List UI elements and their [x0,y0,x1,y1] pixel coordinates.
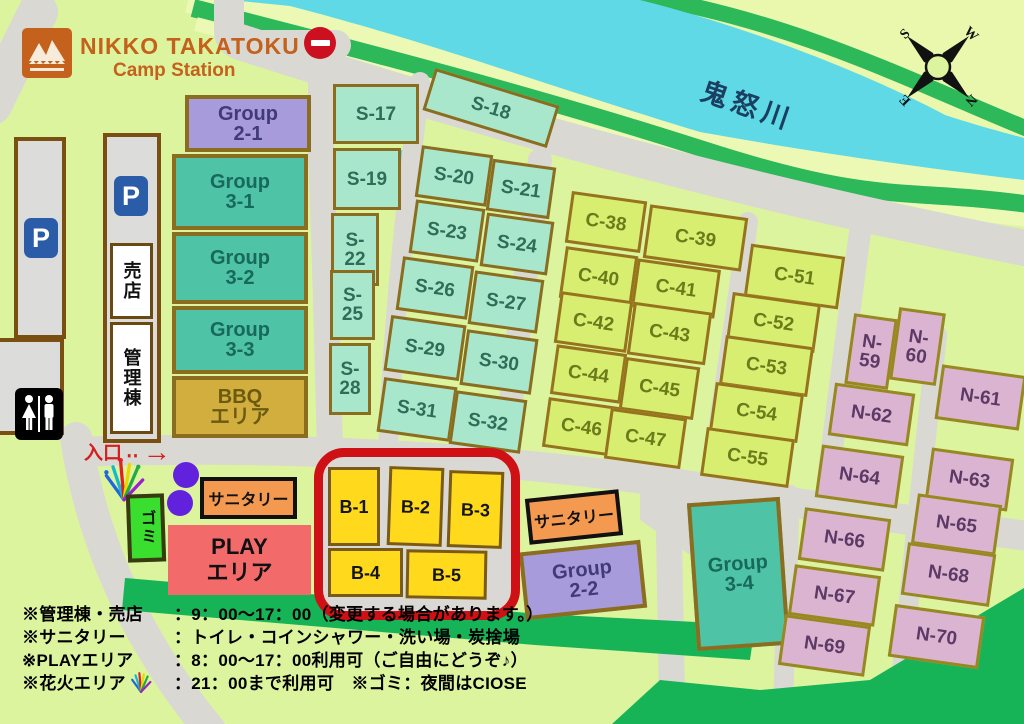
site-label: 2-2 [569,578,600,601]
site-label: C-55 [726,445,769,470]
site-s-30: S-30 [459,329,538,394]
site-b-2: B-2 [387,466,445,547]
site-c-43: C-43 [627,302,713,365]
site-s-23: S-23 [409,199,486,262]
site-label: C-53 [745,354,788,379]
site-label: S-24 [496,232,538,256]
site-n-64: N-64 [815,444,905,508]
site-label: C-39 [674,226,717,251]
site-n-62: N-62 [828,383,916,447]
site-b-3: B-3 [447,470,505,549]
parking-icon: P [24,218,58,258]
site-label: S-17 [356,105,396,124]
site-group-3-4: Group3-4 [687,497,790,651]
site-label: エリア [210,407,270,427]
site-label: C-38 [584,210,627,235]
site-label: 3-4 [724,573,754,595]
play-area: PLAY エリア [168,525,311,595]
play-label-1: PLAY [211,534,268,560]
site-label: S-30 [478,350,520,374]
site-group-2-1: Group2-1 [185,95,311,152]
site-label: C-46 [560,415,603,440]
site-label: N-63 [948,467,991,492]
site-label: S-31 [396,397,438,421]
site-label: N-68 [927,562,970,587]
note-value: ：21：00まで利用可 ※ゴミ：夜間はCIOSE [174,669,527,694]
entrance-marker: 入口 ‥ → [84,438,171,465]
site-label: B-4 [351,564,380,582]
site-label: C-44 [567,362,610,387]
site-label: 2-1 [234,124,263,144]
site-s-32: S-32 [449,390,528,453]
site-label: C-40 [577,265,620,290]
mountain-logo-icon [25,31,69,75]
note-row: ※管理棟・売店 ：9：00～17：00（変更する場合があります。） [22,601,543,624]
entrance-dots: ‥ [126,440,139,463]
note-value: ：トイレ・コインシャワー・洗い場・炭捨場 [174,623,520,648]
site-s-27: S-27 [468,270,545,333]
site-label: S-20 [433,164,475,188]
purple-dot [173,462,199,488]
note-row: ※PLAYエリア ：8：00～17：00利用可（ご自由にどうぞ♪） [22,647,543,670]
site-s-25: S- 25 [330,270,375,340]
site-label: C-52 [752,310,795,335]
site-label: S-18 [469,93,513,123]
office-building: 管理棟 [110,322,153,434]
no-entry-icon [304,27,336,59]
site-bbq-エリア: BBQエリア [172,376,308,438]
site-label: B-2 [401,497,431,516]
site-label: N-61 [959,385,1002,410]
note-label: ※花火エリア [22,669,126,694]
entrance-label: 入口 [84,438,122,465]
site-label: 3-1 [226,192,255,212]
site-label: Group [210,172,270,192]
shop-label: 売店 [119,261,145,301]
site-s-29: S-29 [383,315,466,381]
site-label: B-3 [461,500,491,519]
map-notes: ※管理棟・売店 ：9：00～17：00（変更する場合があります。） ※サニタリー… [22,601,543,693]
site-s-24: S-24 [480,213,555,276]
sanitary-label: サニタリー [208,486,288,510]
site-label: N- 60 [904,326,930,367]
camp-map: 鬼怒川 NIKKO TAKATOKU Camp Station P P [0,0,1024,724]
site-label: 3-3 [226,340,255,360]
site-label: B-5 [432,565,461,584]
site-label: S- 22 [344,231,365,269]
site-label: S-26 [414,276,456,300]
site-label: S-19 [347,170,387,189]
site-group-3-3: Group3-3 [172,306,308,374]
site-b-1: B-1 [328,467,380,546]
site-label: N- 59 [858,331,884,372]
site-c-47: C-47 [604,408,687,469]
site-label: S- 28 [339,360,360,398]
note-row: ※花火エリア ：21：00まで利用可 ※ゴミ：夜間はCIOSE [22,670,543,693]
camp-title: NIKKO TAKATOKU [80,33,300,60]
site-s-26: S-26 [396,256,475,319]
site-s-17: S-17 [333,84,419,144]
site-label: S-27 [485,290,527,314]
site-label: C-42 [572,310,615,335]
site-label: N-64 [838,464,881,489]
restroom-icon [15,388,63,440]
site-n-60: N- 60 [889,307,946,386]
shop-building: 売店 [110,243,153,319]
site-label: N-67 [813,583,856,608]
note-value: ：9：00～17：00（変更する場合があります。） [174,600,543,625]
trash-area: ゴミ [126,493,166,562]
site-label: N-70 [915,624,958,649]
site-s-31: S-31 [377,377,458,442]
purple-dot [167,490,193,516]
site-n-61: N-61 [935,364,1024,430]
site-label: S-21 [500,177,542,201]
site-b-4: B-4 [328,548,403,597]
trash-label: ゴミ [133,510,158,547]
site-s-28: S- 28 [329,343,371,415]
office-label: 管理棟 [119,348,145,408]
camp-logo [22,28,72,78]
site-label: C-45 [638,376,681,401]
site-b-5: B-5 [406,549,488,599]
site-c-42: C-42 [554,291,634,353]
site-label: N-62 [850,402,893,427]
site-label: BBQ [218,387,262,407]
site-label: Group [210,248,270,268]
site-label: S-23 [426,219,468,243]
sanitary-station-west: サニタリー [200,477,297,519]
compass-icon: S W E N [893,22,983,112]
sanitary-station-east: サニタリー [525,489,623,545]
site-label: N-69 [803,633,846,658]
site-label: C-51 [773,264,816,289]
site-c-44: C-44 [550,344,627,403]
site-s-20: S-20 [415,145,494,207]
entrance-arrow-icon: → [143,443,171,461]
site-label: C-41 [654,276,697,301]
site-label: S-32 [467,410,509,434]
site-group-3-2: Group3-2 [172,232,308,304]
site-label: 3-2 [226,268,255,288]
site-label: N-65 [935,512,978,537]
note-label: ※管理棟・売店 [22,600,143,625]
site-label: C-54 [735,400,778,425]
note-label: ※サニタリー [22,623,126,648]
parking-icon: P [114,176,148,216]
site-c-38: C-38 [565,191,647,253]
site-label: N-66 [823,527,866,552]
site-label: B-1 [339,498,368,516]
site-label: Group [218,104,278,124]
site-label: S-29 [404,336,446,360]
site-s-19: S-19 [333,148,401,210]
site-label: S- 25 [342,286,363,324]
site-group-3-1: Group3-1 [172,154,308,230]
site-label: C-43 [648,321,691,346]
note-value: ：8：00～17：00利用可（ご自由にどうぞ♪） [174,646,528,671]
site-label: Group [210,320,270,340]
note-row: ※サニタリー ：トイレ・コインシャワー・洗い場・炭捨場 [22,624,543,647]
site-label: C-47 [624,426,667,451]
sanitary-label: サニタリー [533,501,615,533]
play-label-2: エリア [206,560,272,586]
camp-subtitle: Camp Station [113,60,235,82]
site-s-21: S-21 [486,159,557,219]
fireworks-icon [130,671,152,693]
note-label: ※PLAYエリア [22,646,133,671]
